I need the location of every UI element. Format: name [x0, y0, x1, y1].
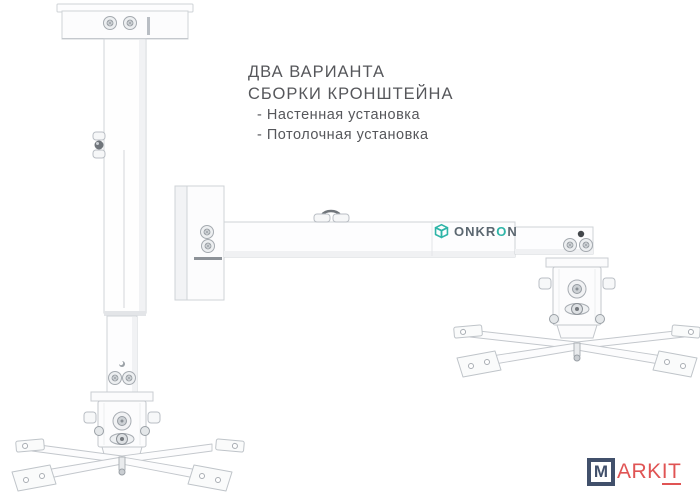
wall-plate: [175, 186, 224, 300]
headline-line1: ДВА ВАРИАНТА: [248, 61, 453, 83]
markit-watermark: M ARKIT: [587, 458, 681, 486]
watermark-text-mid: ARK: [617, 460, 662, 483]
onkron-text-suffix: N: [507, 224, 517, 239]
product-image-canvas: ONKRON ДВА ВАРИАНТА СБОРКИ КРОНШТЕЙНА - …: [0, 0, 700, 494]
onkron-cube-icon: [433, 223, 450, 240]
mount-head: [84, 392, 160, 461]
onkron-text-prefix: ONKR: [454, 224, 496, 239]
bullet-wall-installation: - Настенная установка: [257, 106, 429, 126]
onkron-wordmark: ONKRON: [454, 224, 518, 239]
watermark-text-underlined: IT: [662, 460, 682, 485]
arm-top-knob: [314, 211, 349, 222]
onkron-logo: ONKRON: [433, 221, 518, 241]
bullet-list: - Настенная установка - Потолочная устан…: [257, 106, 429, 145]
onkron-text-accent: O: [496, 224, 507, 239]
mount-head-wall: [539, 258, 615, 338]
extension-arm: [224, 211, 593, 257]
vertical-column: [104, 39, 146, 313]
arm-hole: [578, 231, 584, 237]
headline-line2: СБОРКИ КРОНШТЕЙНА: [248, 83, 453, 105]
headline: ДВА ВАРИАНТА СБОРКИ КРОНШТЕЙНА: [248, 61, 453, 105]
ceiling-plate: [57, 4, 193, 39]
watermark-text: ARKIT: [617, 460, 681, 484]
watermark-m-box: M: [587, 458, 615, 486]
side-wing-knob: [93, 132, 105, 158]
wall-mount-illustration: [170, 182, 700, 394]
bullet-ceiling-installation: - Потолочная установка: [257, 126, 429, 146]
